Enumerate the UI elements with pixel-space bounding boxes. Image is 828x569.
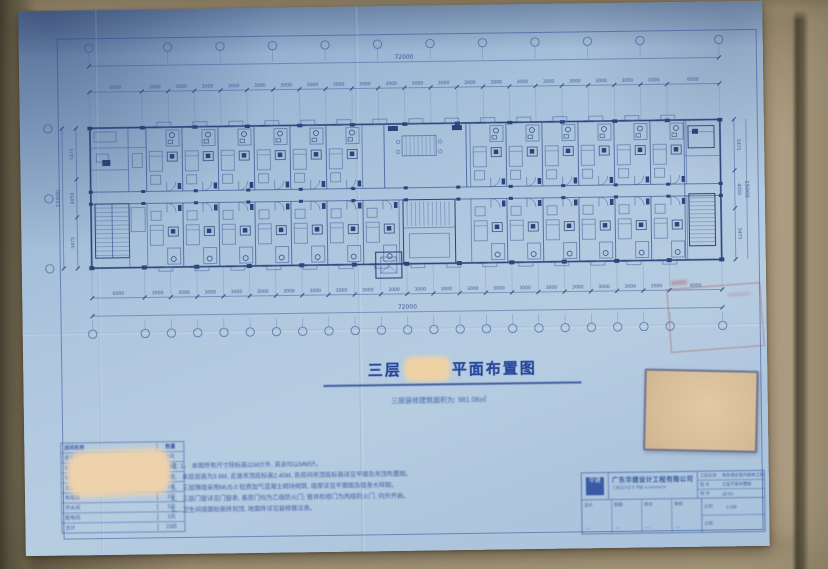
svg-text:4050: 4050: [70, 193, 76, 205]
svg-text:5475: 5475: [736, 228, 742, 240]
svg-text:3000: 3000: [412, 81, 424, 87]
svg-text:3000: 3000: [309, 288, 321, 294]
svg-text:3000: 3000: [359, 81, 371, 87]
company-cell: 广东华建设计工程有限公司 工程设计证书 甲级 A144005678: [609, 472, 698, 499]
table-redaction-blob: [66, 447, 172, 498]
room-name: 合计: [62, 523, 157, 531]
svg-text:3000: 3000: [598, 284, 610, 290]
svg-text:15000: 15000: [743, 180, 749, 198]
svg-text:4050: 4050: [736, 183, 742, 195]
svg-text:6000: 6000: [113, 291, 125, 297]
svg-text:3000: 3000: [569, 78, 581, 84]
svg-text:3000: 3000: [464, 80, 476, 86]
signature-cells: 设计〜制图〜校对〜审核〜: [582, 499, 702, 534]
field-label: 工程名称: [698, 472, 722, 478]
signature-label: 校对: [644, 501, 669, 507]
plan-title: 三层 平面布置图: [321, 353, 583, 383]
signature-cell: 校对〜: [642, 499, 672, 532]
company-logo-icon: 华建: [586, 477, 604, 495]
svg-text:3000: 3000: [175, 84, 187, 90]
svg-text:3000: 3000: [414, 287, 426, 293]
signature-cell: 审核〜: [672, 499, 701, 532]
svg-text:3000: 3000: [362, 287, 374, 293]
signature-label: 制图: [614, 502, 639, 508]
svg-text:3000: 3000: [178, 290, 190, 296]
svg-text:5475: 5475: [70, 237, 76, 249]
svg-text:3000: 3000: [493, 285, 505, 291]
room-name: 配电间: [62, 513, 157, 521]
svg-text:3000: 3000: [204, 289, 216, 295]
svg-text:3000: 3000: [202, 84, 214, 90]
svg-text:3000: 3000: [572, 284, 584, 290]
svg-text:6000: 6000: [110, 85, 122, 91]
svg-text:3000: 3000: [228, 83, 240, 89]
svg-text:3000: 3000: [490, 79, 502, 85]
floor-plan-drawing: 7200060003000300030003000300030003000300…: [35, 27, 753, 345]
company-cert: 工程设计证书 甲级 A144005678: [612, 485, 694, 491]
room-count: 1间: [157, 513, 184, 520]
svg-text:3000: 3000: [254, 83, 266, 89]
field-value: 三层平面布置图: [722, 481, 764, 488]
date-label: 日期: [702, 520, 726, 526]
plan-title-suffix: 平面布置图: [452, 357, 537, 379]
svg-text:3000: 3000: [624, 284, 636, 290]
title-block: 华建 广东华建设计工程有限公司 工程设计证书 甲级 A144005678 工程名…: [581, 470, 766, 535]
stamp-redaction-patch: [643, 369, 759, 453]
photo-scene: 7200060003000300030003000300030003000300…: [0, 0, 828, 569]
title-block-fields: 工程名称商务酒店室内装修工程图 名三层平面布置图图 号JZ-03: [698, 471, 764, 498]
title-block-top-row: 华建 广东华建设计工程有限公司 工程设计证书 甲级 A144005678 工程名…: [582, 471, 764, 501]
title-block-field: 图 号JZ-03: [698, 489, 764, 498]
company-name: 广东华建设计工程有限公司: [612, 474, 694, 484]
svg-text:5475: 5475: [69, 148, 75, 160]
svg-text:3000: 3000: [385, 81, 397, 87]
svg-text:3000: 3000: [519, 285, 531, 291]
scale-date-cell: 比例 1:100 日期: [702, 498, 764, 532]
svg-text:3000: 3000: [543, 79, 555, 85]
svg-text:72000: 72000: [394, 54, 413, 61]
svg-text:15000: 15000: [56, 189, 62, 207]
signature-cell: 设计〜: [582, 500, 612, 533]
svg-text:3000: 3000: [441, 286, 453, 292]
signature-label: 审核: [674, 501, 699, 507]
blueprint-sheet: 7200060003000300030003000300030003000300…: [18, 1, 770, 556]
signature-mark: 〜: [674, 520, 700, 532]
field-label: 图 号: [698, 490, 722, 496]
svg-text:3000: 3000: [280, 82, 292, 88]
room-table-row: 合计23间: [62, 522, 184, 533]
signature-mark: 〜: [584, 521, 610, 533]
room-name: 开水间: [62, 503, 157, 511]
review-stamp-outline: [666, 282, 765, 353]
svg-text:3000: 3000: [651, 283, 663, 289]
signature-mark: 〜: [644, 520, 670, 532]
svg-text:3000: 3000: [438, 80, 450, 86]
svg-text:3000: 3000: [152, 290, 164, 296]
title-redaction-blob: [404, 356, 450, 382]
svg-text:3000: 3000: [467, 286, 479, 292]
signature-cell: 制图〜: [612, 500, 642, 533]
svg-text:3000: 3000: [257, 289, 269, 295]
plan-title-prefix: 三层: [368, 358, 402, 379]
svg-text:72000: 72000: [398, 304, 417, 311]
date-value: [726, 523, 764, 524]
svg-text:6000: 6000: [687, 77, 699, 83]
field-label: 图 名: [698, 481, 722, 487]
company-logo: 华建: [582, 473, 609, 499]
notes-block: 注: 1、 本图所有尺寸除标高以M计外, 其余均以MM计。 2、 本层层高为3.…: [171, 457, 502, 517]
scale-value: 1:100: [726, 503, 764, 509]
title-block-sign-row: 设计〜制图〜校对〜审核〜 比例 1:100 日期: [582, 498, 764, 534]
svg-text:3000: 3000: [149, 84, 161, 90]
svg-text:3000: 3000: [595, 78, 607, 84]
field-value: 商务酒店室内装修工程: [722, 472, 764, 479]
svg-text:5475: 5475: [735, 139, 741, 151]
svg-text:3000: 3000: [621, 78, 633, 84]
svg-text:3000: 3000: [283, 288, 295, 294]
svg-text:3000: 3000: [648, 77, 660, 83]
svg-text:3000: 3000: [231, 289, 243, 295]
svg-text:3000: 3000: [388, 287, 400, 293]
svg-text:3000: 3000: [307, 82, 319, 88]
signature-label: 设计: [584, 502, 609, 508]
field-value: JZ-03: [722, 490, 764, 496]
svg-text:3000: 3000: [546, 285, 558, 291]
room-count: 1间: [157, 503, 184, 510]
room-count: 1间: [157, 493, 184, 500]
scale-label: 比例: [702, 503, 726, 509]
room-count: 23间: [157, 523, 184, 530]
signature-mark: 〜: [614, 521, 640, 533]
svg-text:3000: 3000: [336, 288, 348, 294]
svg-text:3000: 3000: [517, 79, 529, 85]
svg-text:3000: 3000: [333, 82, 345, 88]
